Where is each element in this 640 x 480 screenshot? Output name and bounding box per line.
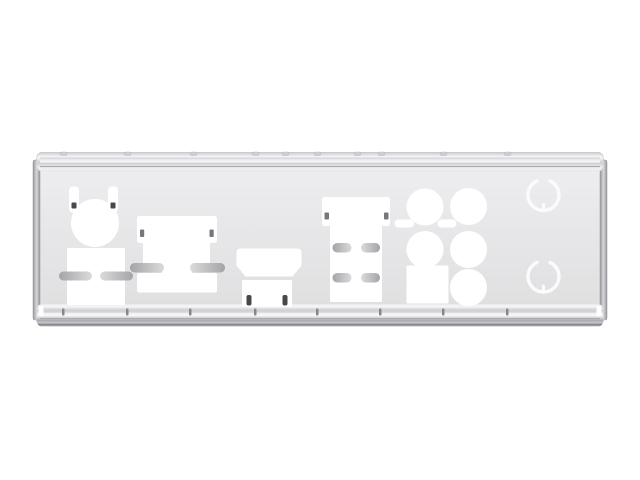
top-rim-notches <box>60 152 511 156</box>
right-flange <box>600 160 607 320</box>
left-flange <box>33 160 40 320</box>
audio-jack-hole <box>407 231 444 268</box>
audio-jack-cluster-cutout <box>395 188 488 306</box>
usb-divider-slot-left <box>59 272 92 281</box>
audio-pill-slot-left <box>395 220 415 228</box>
vga-left-screw-mark <box>140 230 144 238</box>
audio-jack-hole <box>407 189 444 226</box>
display-left-screw-mark <box>325 213 330 220</box>
audio-jack-hole <box>450 269 487 306</box>
audio-jack-hole <box>450 188 487 225</box>
audio-pill-slot-right <box>438 220 457 228</box>
ps2-left-screw-mark <box>72 203 77 209</box>
bottom-rim <box>37 305 603 327</box>
knockout-tab-top <box>542 203 545 212</box>
vga-divider-slot-right <box>190 263 225 273</box>
ps2-right-screw-mark <box>111 203 116 209</box>
hdmi-bent-tab-left <box>247 295 252 306</box>
usb-divider-slot-right <box>100 272 133 281</box>
audio-square-hole <box>407 266 449 304</box>
usb-stack-cutout <box>59 248 133 305</box>
bottom-right-fold-notch <box>597 306 602 316</box>
knockout-tab-bottom <box>542 285 545 294</box>
display-right-screw-mark <box>384 213 389 220</box>
vga-right-screw-mark <box>210 230 214 238</box>
product-photo <box>0 0 640 480</box>
bottom-left-fold-notch <box>39 306 44 316</box>
hdmi-bent-tab-right <box>283 295 288 306</box>
vga-divider-slot-left <box>130 263 164 273</box>
display-port-stack-cutout <box>322 197 390 302</box>
audio-jack-hole <box>450 231 487 268</box>
io-shield-illustration <box>0 0 640 480</box>
